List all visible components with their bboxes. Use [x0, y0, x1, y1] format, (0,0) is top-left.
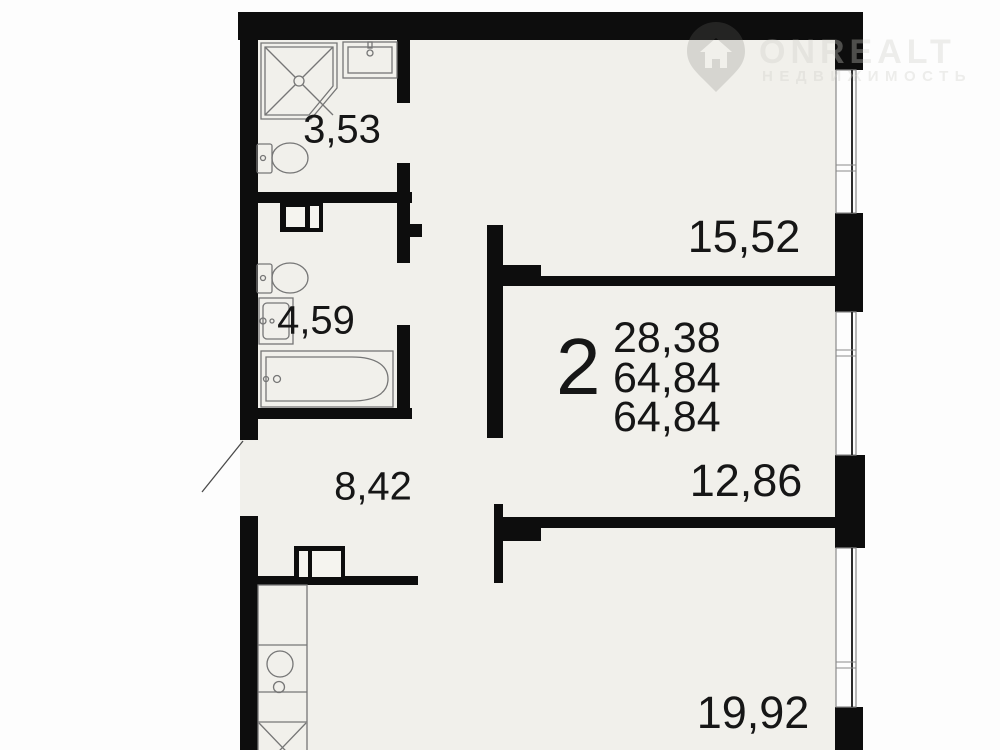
wall-room-divider-b-stub: [503, 528, 541, 541]
area-label-hallway: 8,42: [334, 465, 412, 510]
wall-stub-corridor: [410, 224, 422, 237]
wall-right-pier-2: [835, 455, 865, 548]
window-1: [836, 70, 856, 213]
wall-right-pier-3: [835, 707, 863, 750]
area-label-living-room-top: 15,52: [688, 211, 801, 263]
wall-room-divider-b: [503, 517, 835, 528]
floor-plan-image: 3,53 4,59 8,42 15,52 12,86 19,92 2 28,38…: [0, 0, 1000, 750]
wall-room-divider-a-stub: [503, 265, 541, 286]
vent-shaft-kitchen: [294, 546, 345, 582]
wall-central-upper: [487, 225, 503, 438]
window-3: [836, 548, 856, 707]
area-label-shower-bathroom: 3,53: [303, 108, 381, 153]
window-2: [836, 312, 856, 455]
apartment-living-area: 28,38: [613, 319, 721, 359]
wall-bathroom-right-a: [397, 40, 410, 103]
wall-right-pier-1: [835, 213, 863, 312]
area-label-room-middle: 12,86: [690, 455, 803, 507]
apartment-areas: 28,38 64,84 64,84: [613, 319, 721, 438]
wall-bathroom-bottom: [240, 408, 412, 419]
wall-room-divider-a: [503, 276, 835, 286]
wall-left-lower: [240, 516, 258, 750]
wall-top-right-corner: [835, 12, 863, 70]
wall-central-lower: [494, 504, 503, 583]
windows: [836, 70, 856, 707]
area-label-kitchen-living-room: 19,92: [697, 687, 810, 739]
wall-bathroom-divider: [240, 192, 412, 203]
wall-bathroom-right-c: [397, 325, 410, 419]
apartment-total-area-2: 64,84: [613, 398, 721, 438]
vent-shaft-bathroom: [280, 202, 323, 232]
area-label-bathroom: 4,59: [277, 299, 355, 344]
apartment-rooms-count: 2: [556, 327, 601, 407]
wall-top: [238, 12, 863, 40]
wall-bathroom-right-b: [397, 163, 410, 263]
wall-left-upper: [240, 12, 258, 440]
floor-plan-drawing: [0, 0, 1000, 750]
entrance-door-swing: [202, 441, 243, 492]
